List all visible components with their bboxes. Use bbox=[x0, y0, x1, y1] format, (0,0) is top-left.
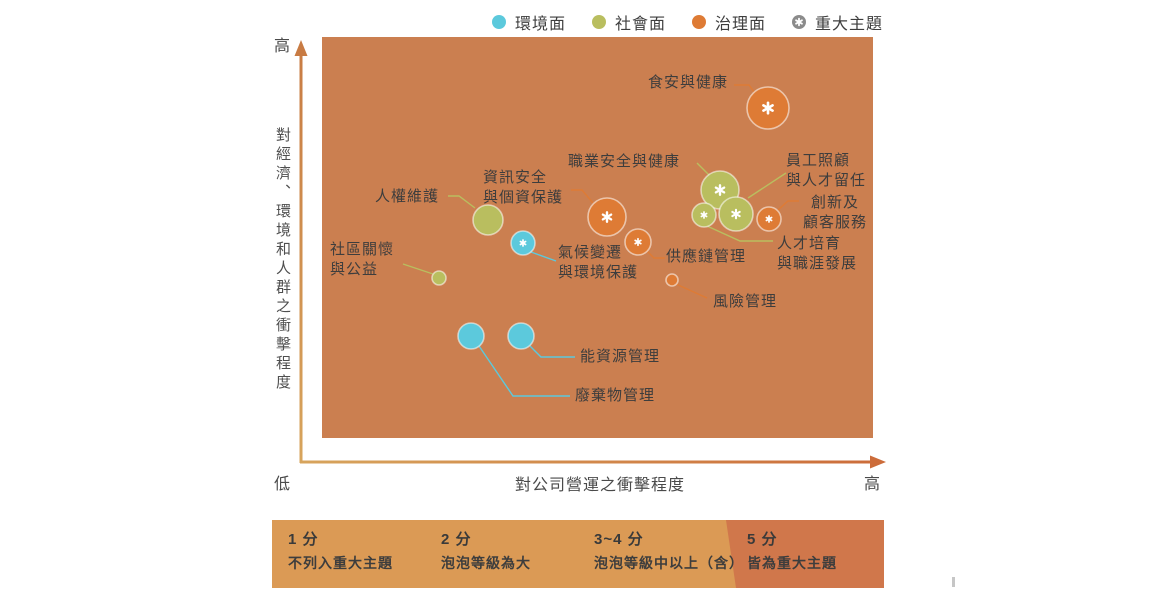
score-segment-desc: 皆為重大主題 bbox=[747, 553, 837, 573]
x-axis-arrowhead bbox=[870, 456, 886, 469]
score-segment-score: 1 分 bbox=[288, 528, 319, 549]
bubble-人權維護[interactable] bbox=[473, 205, 503, 235]
score-segment-score: 2 分 bbox=[441, 528, 472, 549]
bubble-chart-svg bbox=[0, 0, 1160, 595]
score-segment-score: 3~4 分 bbox=[594, 528, 644, 549]
score-segment-score: 5 分 bbox=[747, 528, 778, 549]
score-segment-desc: 不列入重大主題 bbox=[288, 553, 393, 573]
score-segment-desc: 泡泡等級中以上（含） bbox=[594, 553, 744, 573]
plot-area bbox=[322, 37, 873, 438]
score-segment-desc: 泡泡等級為大 bbox=[441, 553, 531, 573]
bubble-能資源管理[interactable] bbox=[508, 323, 534, 349]
bubble-風險管理[interactable] bbox=[666, 274, 678, 286]
caption-tick bbox=[952, 577, 955, 587]
y-axis-arrowhead bbox=[295, 40, 308, 56]
materiality-matrix: 環境面社會面治理面重大主題 高 對經濟、環境和人群之衝擊程度 低 對公司營運之衝… bbox=[0, 0, 1160, 595]
score-legend-bar: 1 分 不列入重大主題 2 分 泡泡等級為大 3~4 分 泡泡等級中以上（含） … bbox=[272, 520, 884, 588]
bubble-廢棄物管理[interactable] bbox=[458, 323, 484, 349]
bubble-社區關懷與公益[interactable] bbox=[432, 271, 446, 285]
